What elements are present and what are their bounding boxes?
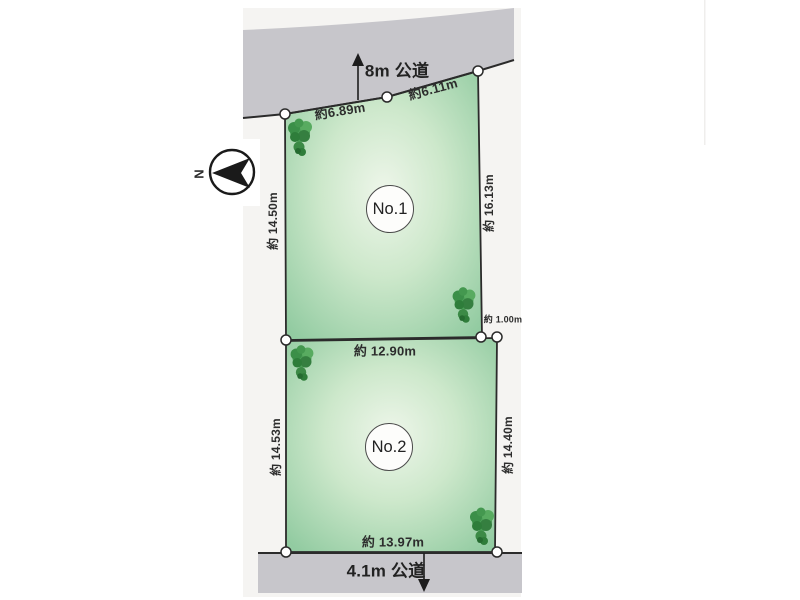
compass-north-icon (210, 150, 254, 194)
land-plot-diagram: N 8m 公道 約6.89m 約6.11m 約 14.50m 約 16.13m … (0, 0, 800, 600)
plot1-label: No.1 (373, 200, 408, 219)
road-top-label: 8m 公道 (365, 63, 429, 80)
plot1-label-badge: No.1 (366, 185, 414, 233)
plot2-right-offset-measure: 約 1.00m (484, 316, 522, 325)
plot1-bottom-measure: 約 12.90m (354, 345, 416, 358)
plot1-right-measure: 約 16.13m (483, 174, 495, 232)
plot2-label: No.2 (372, 438, 407, 457)
plot1-left-measure: 約 14.50m (267, 192, 279, 250)
plot2-bottom-measure: 約 13.97m (362, 536, 424, 549)
plot2-right-measure: 約 14.40m (502, 416, 514, 474)
scan-artifact-line (704, 0, 706, 145)
plot2-label-badge: No.2 (365, 423, 413, 471)
road-bottom-label: 4.1m 公道 (347, 563, 426, 580)
plot2-left-measure: 約 14.53m (270, 418, 282, 476)
compass-north-label: N (193, 169, 206, 179)
plot-diagram-canvas (0, 0, 800, 600)
